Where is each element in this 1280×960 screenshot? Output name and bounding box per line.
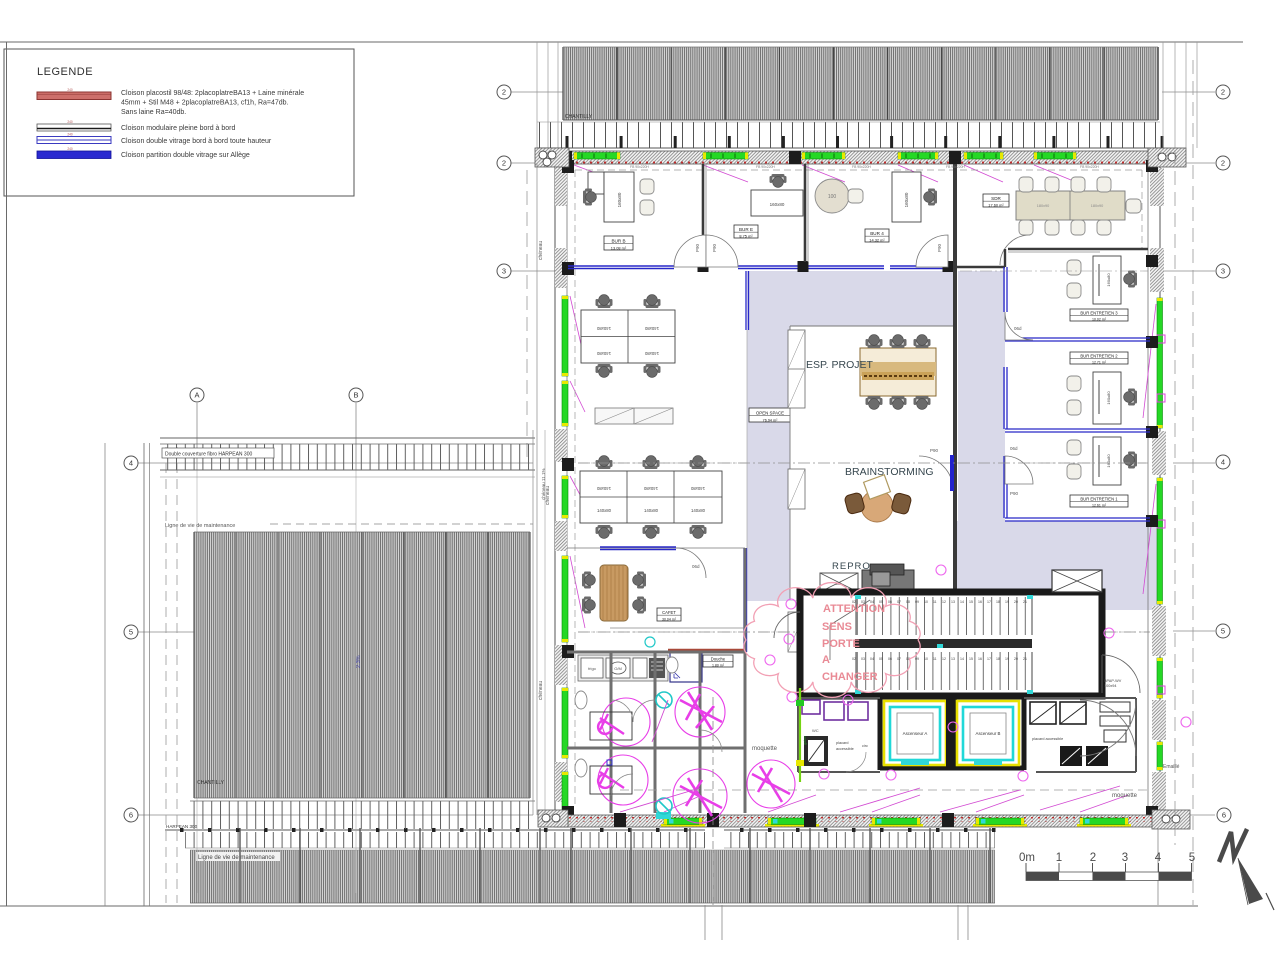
svg-text:chéneau 11.1%: chéneau 11.1% xyxy=(541,468,546,500)
svg-text:10.02 m²: 10.02 m² xyxy=(1092,317,1107,321)
svg-text:Cloison partition double vitra: Cloison partition double vitrage sur All… xyxy=(121,152,250,159)
svg-text:1.80 m²: 1.80 m² xyxy=(712,663,725,667)
svg-text:gaine: gaine xyxy=(803,736,807,745)
svg-text:Ligne de vie de maintenance: Ligne de vie de maintenance xyxy=(165,523,235,529)
svg-text:accessible: accessible xyxy=(836,747,854,751)
svg-text:240: 240 xyxy=(67,88,73,92)
svg-text:06d: 06d xyxy=(1014,326,1022,331)
svg-text:12: 12 xyxy=(942,657,946,661)
svg-text:19: 19 xyxy=(1005,600,1009,604)
svg-text:Ascenseur A: Ascenseur A xyxy=(903,731,928,736)
svg-text:P90: P90 xyxy=(930,448,939,453)
svg-text:05: 05 xyxy=(879,657,883,661)
svg-text:240: 240 xyxy=(67,120,73,124)
svg-text:14: 14 xyxy=(960,600,964,604)
svg-text:08: 08 xyxy=(906,600,910,604)
svg-text:140x80: 140x80 xyxy=(690,486,705,491)
svg-text:15: 15 xyxy=(969,657,973,661)
svg-text:Cloison double vitrage bord à: Cloison double vitrage bord à bord toute… xyxy=(121,138,272,145)
svg-text:140x80: 140x80 xyxy=(644,326,659,331)
svg-text:07: 07 xyxy=(897,600,901,604)
svg-text:8.75 m²: 8.75 m² xyxy=(739,233,753,238)
svg-text:SENS: SENS xyxy=(822,621,852,633)
svg-text:140x80: 140x80 xyxy=(644,508,659,513)
svg-text:12: 12 xyxy=(942,600,946,604)
svg-text:CHANTILLY: CHANTILLY xyxy=(565,114,593,120)
svg-text:FB 90x220H: FB 90x220H xyxy=(852,165,871,169)
svg-text:moquette: moquette xyxy=(1112,793,1138,799)
svg-text:06d: 06d xyxy=(1010,446,1018,451)
svg-text:chéneau: chéneau xyxy=(538,681,544,700)
svg-text:PORTE: PORTE xyxy=(822,638,860,650)
svg-text:2: 2 xyxy=(1090,852,1096,864)
svg-text:BUR ENTRETIEN 3: BUR ENTRETIEN 3 xyxy=(1080,310,1118,315)
svg-text:140x80: 140x80 xyxy=(691,508,706,513)
svg-text:140x80: 140x80 xyxy=(596,351,611,356)
svg-text:BUR ENTRETIEN 1: BUR ENTRETIEN 1 xyxy=(1080,496,1118,501)
svg-text:A: A xyxy=(822,654,830,666)
svg-text:13: 13 xyxy=(951,657,955,661)
svg-text:4: 4 xyxy=(129,459,133,468)
svg-text:13.08 m²: 13.08 m² xyxy=(611,245,627,250)
svg-text:Cloison modulaire pleine bord: Cloison modulaire pleine bord à bord xyxy=(121,125,236,132)
svg-text:O/M: O/M xyxy=(614,666,622,671)
svg-text:FB 90x220H: FB 90x220H xyxy=(1080,165,1099,169)
svg-text:P90: P90 xyxy=(937,243,942,252)
svg-text:6: 6 xyxy=(129,811,133,820)
svg-text:circ: circ xyxy=(862,744,868,748)
svg-text:Cloison placostil 98/48: 2plac: Cloison placostil 98/48: 2placoplatreBA1… xyxy=(121,90,304,97)
svg-text:chéneau: chéneau xyxy=(538,241,544,260)
svg-text:18: 18 xyxy=(996,600,1000,604)
svg-text:140x80: 140x80 xyxy=(596,486,611,491)
svg-text:Ligne de vie de maintenance: Ligne de vie de maintenance xyxy=(198,855,275,861)
svg-text:16: 16 xyxy=(978,657,982,661)
svg-text:03: 03 xyxy=(861,657,865,661)
svg-text:140x80: 140x80 xyxy=(597,508,612,513)
svg-text:WC: WC xyxy=(812,728,819,733)
svg-text:20: 20 xyxy=(1014,657,1018,661)
svg-text:14.32 m²: 14.32 m² xyxy=(869,237,885,242)
svg-text:2.3%: 2.3% xyxy=(356,655,362,668)
svg-text:16: 16 xyxy=(978,600,982,604)
svg-text:0m: 0m xyxy=(1019,852,1035,864)
svg-text:180x90: 180x90 xyxy=(1037,204,1049,208)
svg-text:BUR B: BUR B xyxy=(611,238,625,243)
svg-text:2: 2 xyxy=(502,159,506,168)
svg-text:BPAP-WV: BPAP-WV xyxy=(1104,679,1122,683)
svg-text:21: 21 xyxy=(1023,600,1027,604)
svg-text:3: 3 xyxy=(1122,852,1128,864)
svg-text:placard: placard xyxy=(836,741,848,745)
svg-text:5: 5 xyxy=(1189,852,1195,864)
svg-text:19: 19 xyxy=(1005,657,1009,661)
svg-text:45mm + Stil M48 + 2placoplatre: 45mm + Stil M48 + 2placoplatreBA13, cf1h… xyxy=(121,100,289,107)
svg-text:ATTENTION: ATTENTION xyxy=(823,603,885,615)
svg-text:ESP. PROJET: ESP. PROJET xyxy=(806,359,873,371)
svg-text:160x80: 160x80 xyxy=(1106,273,1111,287)
svg-text:moquette: moquette xyxy=(752,746,778,752)
svg-text:placard accessible: placard accessible xyxy=(1032,737,1063,741)
svg-text:100: 100 xyxy=(828,194,837,200)
svg-text:BUR ENTRETIEN 2: BUR ENTRETIEN 2 xyxy=(1080,353,1118,358)
svg-text:09: 09 xyxy=(915,600,919,604)
svg-text:18: 18 xyxy=(996,657,1000,661)
svg-text:21: 21 xyxy=(1023,657,1027,661)
svg-text:10: 10 xyxy=(924,657,928,661)
svg-text:frigo: frigo xyxy=(588,666,597,671)
svg-text:240: 240 xyxy=(67,147,73,151)
svg-text:FB 90x220H: FB 90x220H xyxy=(946,165,965,169)
svg-text:3: 3 xyxy=(502,267,506,276)
svg-text:160x80: 160x80 xyxy=(770,202,785,207)
svg-text:CHANGER: CHANGER xyxy=(822,671,878,683)
svg-text:2: 2 xyxy=(1221,159,1225,168)
svg-text:BRAINSTORMING: BRAINSTORMING xyxy=(845,466,933,478)
svg-text:180x90: 180x90 xyxy=(1091,204,1103,208)
svg-text:BUR E: BUR E xyxy=(739,227,753,232)
svg-text:15: 15 xyxy=(969,600,973,604)
svg-text:5: 5 xyxy=(129,628,133,637)
svg-text:17: 17 xyxy=(987,657,991,661)
svg-text:12.61 m²: 12.61 m² xyxy=(1092,503,1107,507)
svg-text:160x80: 160x80 xyxy=(1106,454,1111,468)
svg-text:09: 09 xyxy=(915,657,919,661)
svg-text:Sans laine Ra=40db.: Sans laine Ra=40db. xyxy=(121,109,186,116)
svg-text:Double couverture fibro HARPEA: Double couverture fibro HARPEAN 300 xyxy=(165,452,252,458)
svg-text:2: 2 xyxy=(1221,88,1225,97)
svg-text:17.60 m²: 17.60 m² xyxy=(988,202,1004,207)
svg-text:CHANTILLY: CHANTILLY xyxy=(197,780,225,786)
svg-text:02: 02 xyxy=(852,657,856,661)
svg-text:11: 11 xyxy=(933,657,937,661)
svg-text:17: 17 xyxy=(987,600,991,604)
svg-text:20: 20 xyxy=(1014,600,1018,604)
svg-text:06: 06 xyxy=(888,657,892,661)
svg-text:B: B xyxy=(353,391,358,400)
svg-text:CAFET: CAFET xyxy=(662,610,676,615)
svg-text:P90: P90 xyxy=(695,243,700,252)
svg-text:12.71 m²: 12.71 m² xyxy=(1092,360,1107,364)
svg-text:Ascenseur B: Ascenseur B xyxy=(976,731,1001,736)
svg-text:5: 5 xyxy=(1221,627,1225,636)
svg-text:14: 14 xyxy=(960,657,964,661)
svg-text:P90: P90 xyxy=(712,243,717,252)
svg-text:BUR 4: BUR 4 xyxy=(870,231,884,236)
svg-text:Emaillé: Emaillé xyxy=(1163,764,1180,770)
svg-text:FB 90x220H: FB 90x220H xyxy=(756,165,775,169)
svg-text:6: 6 xyxy=(1222,811,1226,820)
svg-text:A: A xyxy=(194,391,199,400)
svg-text:140x80: 140x80 xyxy=(596,326,611,331)
svg-text:Douche: Douche xyxy=(711,656,726,661)
svg-text:11: 11 xyxy=(933,600,937,604)
svg-text:06: 06 xyxy=(888,600,892,604)
svg-text:07: 07 xyxy=(897,657,901,661)
svg-text:240: 240 xyxy=(67,133,73,137)
svg-text:P90: P90 xyxy=(1010,491,1019,496)
svg-text:76.94 m²: 76.94 m² xyxy=(763,418,778,422)
svg-text:LEGENDE: LEGENDE xyxy=(37,66,93,78)
svg-text:FB 90x220H: FB 90x220H xyxy=(630,165,649,169)
svg-text:4: 4 xyxy=(1155,852,1162,864)
svg-text:2: 2 xyxy=(502,88,506,97)
svg-text:4: 4 xyxy=(1221,458,1225,467)
svg-text:1: 1 xyxy=(1056,852,1062,864)
svg-text:13: 13 xyxy=(951,600,955,604)
svg-text:10: 10 xyxy=(924,600,928,604)
svg-text:140x80: 140x80 xyxy=(644,351,659,356)
svg-text:OPEN SPACE: OPEN SPACE xyxy=(756,410,784,415)
svg-text:30.04 m²: 30.04 m² xyxy=(662,617,677,621)
svg-text:100x94: 100x94 xyxy=(1104,684,1116,688)
svg-text:160x80: 160x80 xyxy=(904,192,909,207)
svg-text:04: 04 xyxy=(870,657,874,661)
svg-text:160x80: 160x80 xyxy=(617,192,622,207)
svg-text:HARPEAN 300: HARPEAN 300 xyxy=(166,824,198,829)
svg-text:160x80: 160x80 xyxy=(1106,391,1111,405)
svg-text:SDR: SDR xyxy=(991,196,1001,201)
svg-text:06d: 06d xyxy=(692,564,700,569)
svg-text:140x80: 140x80 xyxy=(643,486,658,491)
svg-text:3: 3 xyxy=(1221,267,1225,276)
